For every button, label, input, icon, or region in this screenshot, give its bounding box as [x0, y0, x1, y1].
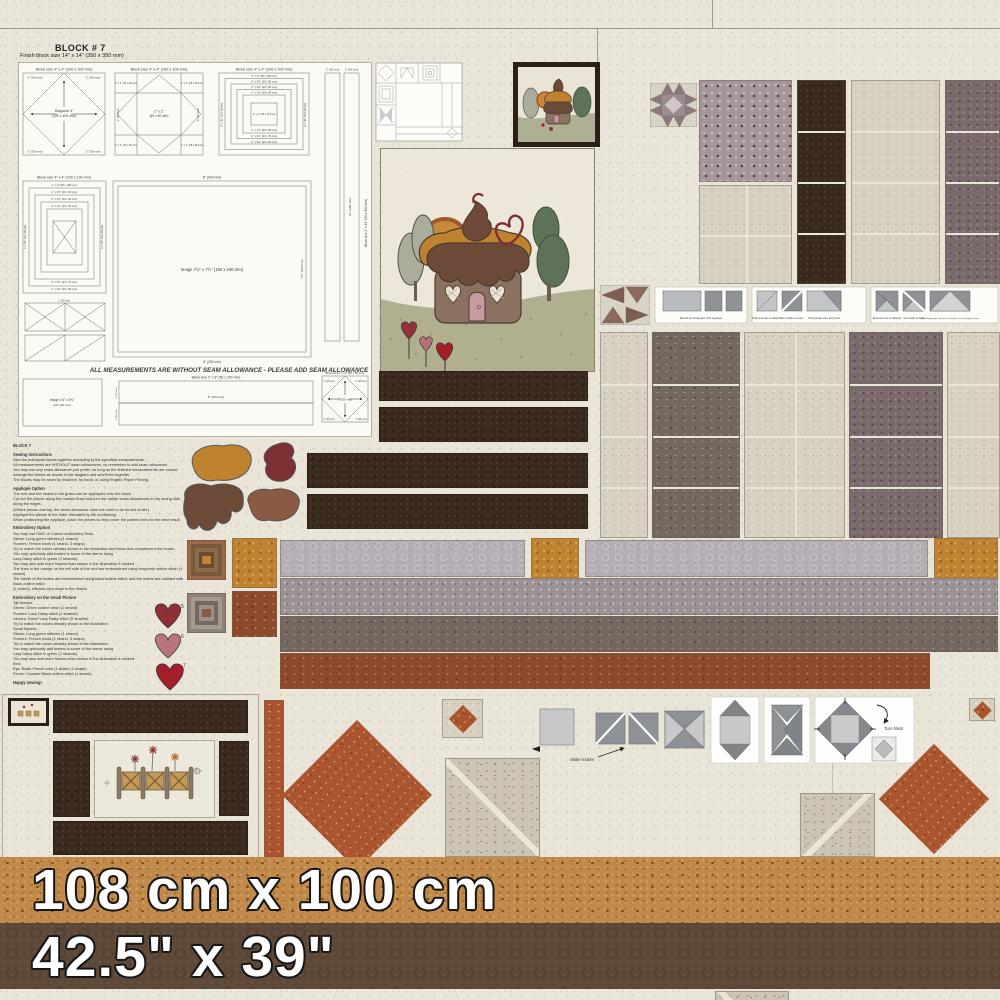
instructions-block-label: BLOCK 7 — [13, 443, 186, 448]
applique-band-piece — [248, 489, 299, 521]
make-marks-label: Make marks — [570, 757, 595, 762]
small-picture-panel — [2, 694, 259, 858]
page-subtitle: Finish block size 14" x 14" (350 x 350 m… — [20, 53, 124, 59]
label-strip: ¾" x 2⅜" (20 x 60 mm) — [51, 197, 77, 201]
block-assembly-diagram — [375, 62, 463, 142]
label-small-image-mm: (40 x 90 mm) — [53, 403, 71, 407]
label-one-25: 1" (25 mm) — [323, 381, 335, 383]
label-strip-block: Block size 2" x 8" (50 x 200 mm) — [192, 376, 241, 380]
frame-piece-left — [53, 741, 90, 817]
applique-hearts: 5 6 7 — [148, 600, 188, 692]
label-small-block: Block size 2" x 2" (50 x 50 mm) — [326, 371, 365, 375]
label-strip: ¾" x 2¾" (20 x 70 mm) — [251, 134, 277, 138]
applique-heart-5 — [155, 604, 180, 628]
label-strip: ¾" x 3½" (20 x 90 mm) — [100, 225, 104, 249]
label-block-size: Block size 4" x 4" (100 x 100 mm) — [36, 68, 93, 72]
cutting-diagrams: Block size 4" x 4" (100 x 100 mm) Diagon… — [19, 63, 371, 436]
turn-block-label: Turn block — [884, 726, 904, 731]
applique-muffin-piece — [192, 445, 251, 481]
fabric-swatch-beige-column — [851, 80, 940, 284]
right-tree — [533, 207, 569, 301]
bottom-strip-brown: 42.5" x 39" — [0, 923, 1000, 989]
fabric-swatch-brown-column — [652, 332, 740, 538]
label-one-25: 1" (25 mm) — [355, 381, 367, 383]
page-title: BLOCK # 7 — [55, 43, 106, 53]
piecing-caption: Cut outside of seam — [781, 317, 803, 320]
fabric-strip-graybrown — [280, 616, 998, 652]
fabric-swatch-beige-column — [600, 332, 648, 538]
piecing-caption: Draw and sew on diagonal — [873, 317, 902, 320]
barn-door-piece — [715, 991, 789, 1000]
diamond-block-small — [442, 699, 483, 738]
diamond-block-corner — [969, 698, 995, 721]
label-block-size: Block size 4" x 4" (100 x 100 mm) — [37, 176, 91, 180]
label-strip: ¾" x 1⅞" (20 x 50 mm) — [251, 128, 277, 132]
frosting-dollop — [463, 201, 492, 241]
label-corner-1x1: 1" x 1" (25 x 25 mm) — [181, 82, 203, 85]
barn-door-piece — [445, 758, 540, 857]
label-twelve: 12" (300 mm) — [348, 198, 352, 216]
brown-border-strip — [307, 453, 588, 488]
piecing-caption: Fold triangle open and press — [808, 317, 840, 320]
heart-number: 6 — [181, 634, 184, 640]
piecing-caption: Result of rectangles and squares — [680, 316, 723, 320]
heart-number: 5 — [181, 604, 184, 610]
log-cabin-block-orange — [187, 540, 226, 580]
label-corner: 2" (50 mm) — [116, 409, 118, 420]
heart-number: 7 — [183, 663, 186, 669]
fabric-swatch-rust — [232, 591, 277, 637]
rust-diamond-large — [282, 720, 432, 870]
cupcake-house-illustration — [380, 148, 595, 372]
label-eight: 8" (200 mm) — [203, 176, 222, 180]
label-block-size: Block size 4" x 4" (100 x 100 mm) — [236, 68, 293, 72]
brown-border-strip — [379, 407, 588, 442]
log-cabin-block-gray — [187, 593, 226, 633]
diamond-patch — [449, 705, 477, 733]
label-strip: 1" x 1" (25 x 25 mm) — [253, 113, 276, 116]
label-strip: ¾" x 3½" (20 x 90 mm) — [303, 103, 307, 127]
mini-picture — [518, 67, 595, 142]
label-diagonal-mm: (100 x 100 mm) — [52, 114, 76, 118]
label-strip: ¾" x 3⅛" (20 x 80 mm) — [51, 287, 77, 291]
label-strip: ¾" x 3½" (20 x 90 mm) — [220, 103, 224, 127]
fabric-swatch-mauve-column — [849, 332, 943, 538]
brown-border-strip — [307, 494, 588, 529]
cupcake-house — [419, 194, 531, 323]
fabric-swatch-darkbrown-column — [797, 80, 846, 284]
frame-piece-top — [53, 700, 248, 733]
label-eight: 8" (200 mm) — [203, 360, 220, 364]
fabric-strip-rust — [280, 653, 930, 689]
label-strip: ¾" x 4" (20 x 100 mm) — [51, 183, 77, 187]
cutting-diagrams-panel: Block size 4" x 4" (100 x 100 mm) Diagon… — [18, 62, 372, 437]
label-diagonal: Diagonal 4" — [55, 109, 74, 113]
section-lines-applique: The roof and the hearts in the grass can… — [13, 491, 186, 521]
label-strip: ¾" x 4" (20 x 100 mm) — [251, 74, 277, 78]
applique-dollop-piece — [264, 443, 295, 482]
piecing-caption: Draw and sew on diagonal — [752, 317, 782, 320]
flying-geese-block — [600, 285, 650, 325]
label-corner: 2" (50 mm) — [86, 76, 101, 80]
barn-door-piece — [800, 793, 875, 857]
piecing-caption: Fold triangle open and press, remember t… — [921, 317, 979, 320]
applique-heart-7 — [156, 664, 183, 690]
section-lines-embroidery: You may use DMC or Cosmo embroidery flos… — [13, 531, 186, 592]
label-small-image: Image 1⅝" x 3⅝" — [50, 398, 74, 402]
brown-border-strip — [379, 371, 588, 401]
mini-picture-frame — [513, 62, 600, 147]
label-side-7: 7½" (190 mm) — [300, 260, 304, 279]
cut-guide-line — [712, 0, 713, 28]
label-corner-1x1: 1" x 1" (25 x 25 mm) — [115, 144, 137, 147]
section-lines-sewing: Sew the individual blocks together accor… — [13, 457, 186, 482]
fence-picture — [94, 740, 215, 818]
frame-piece-right — [219, 741, 249, 816]
panel-size-metric: 108 cm x 100 cm — [32, 862, 497, 919]
label-strip: ¾" x 1⅝" (20 x 40 mm) — [51, 204, 77, 208]
label-block-size: Block size 4" x 4" (100 x 100 mm) — [131, 68, 188, 72]
label-corner: 2" (50 mm) — [58, 300, 70, 303]
fabric-swatch-beige-column — [947, 332, 1000, 538]
piecing-instruction-cards: Result of rectangles and squares Draw an… — [653, 285, 1000, 327]
fabric-swatch-beige-grid-column — [744, 332, 845, 538]
applique-heart-6 — [155, 634, 180, 658]
cupcake-house-scene — [381, 149, 594, 371]
label-strip: ¾" x 3½" (20 x 90 mm) — [23, 225, 27, 249]
sawtooth-star-block — [650, 83, 697, 127]
applique-roof-piece — [184, 484, 244, 530]
panel-size-imperial: 42.5" x 39" — [32, 929, 335, 986]
label-image-size: Image 7½" x 7½" (190 x 190 mm) — [181, 267, 244, 272]
fabric-swatch-mauve-floral — [699, 80, 792, 182]
label-strip: ¾" x 1⅝" (20 x 40 mm) — [251, 91, 277, 95]
door — [469, 292, 485, 321]
small-picture-thumbnail — [8, 698, 49, 726]
applique-pieces — [183, 438, 308, 538]
square-in-square-assembly: Make marks Turn block — [528, 695, 918, 767]
diamond-patch — [973, 701, 991, 719]
fabric-swatch-orange — [232, 538, 277, 588]
label-strip: ¾" x 3⅛" (20 x 80 mm) — [251, 140, 277, 144]
quilt-fabric-panel: BLOCK # 7 Finish block size 14" x 14" (3… — [0, 0, 1000, 1000]
label-strip: ¾" x 3½" (20 x 90 mm) — [251, 80, 277, 84]
label-corner-1x1: 1" x 1" (25 x 25 mm) — [115, 82, 137, 85]
label-corner: 2" (50 mm) — [86, 150, 101, 154]
label-corner: 2" (50 mm) — [116, 387, 118, 398]
label-eight: 8" (200 mm) — [208, 395, 224, 399]
label-side: 1" (25 mm) — [196, 109, 200, 122]
label-side: 1" (25 mm) — [116, 109, 120, 122]
rust-vertical-strip — [264, 700, 284, 857]
label-center-mm: (50 x 50 mm) — [150, 114, 169, 118]
bird — [194, 768, 203, 774]
fabric-strip-gray-dots — [280, 578, 998, 615]
label-strip-width: 1" (25 mm) — [345, 68, 359, 72]
label-vertical-block: Block size 2" x 12" (50 x 300 mm) — [364, 199, 368, 247]
fabric-strip-lightgray — [280, 540, 525, 577]
label-strip: ¾" x 2¾" (20 x 70 mm) — [51, 280, 77, 284]
fabric-swatch-beige-grid — [699, 185, 792, 284]
label-strip-width: 1" (25 mm) — [326, 68, 340, 72]
frame-piece-bottom — [53, 821, 248, 855]
label-corner-1x1: 1" x 1" (25 x 25 mm) — [181, 144, 203, 147]
fabric-strip-lightgray — [585, 540, 928, 577]
bottom-strip-orange: 108 cm x 100 cm — [0, 857, 1000, 923]
label-center: 2" x 2" — [154, 110, 165, 114]
label-one-50: 1" (50 mm) — [338, 398, 352, 402]
cut-guide-line — [0, 28, 1000, 29]
label-one-25: 1" (25 mm) — [355, 419, 367, 421]
label-corner: 2" (50 mm) — [28, 150, 43, 154]
label-strip: ¾" x 2⅜" (20 x 60 mm) — [251, 85, 277, 89]
fence-scene — [95, 741, 214, 817]
label-one-25: 1" (25 mm) — [323, 419, 335, 421]
fabric-swatch-darkmauve-column — [945, 80, 1000, 284]
label-corner: 2" (50 mm) — [28, 76, 43, 80]
label-strip: ¾" x 3½" (20 x 90 mm) — [51, 190, 77, 194]
